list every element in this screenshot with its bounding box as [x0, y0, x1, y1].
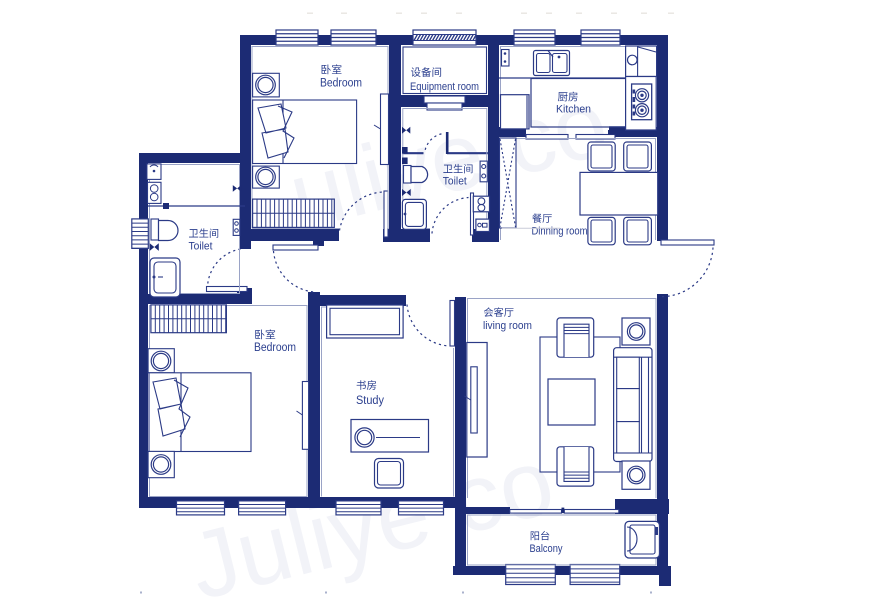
svg-text:Bedroom: Bedroom — [320, 78, 362, 90]
svg-text:living room: living room — [483, 320, 532, 332]
svg-text:Dinning room: Dinning room — [532, 226, 588, 238]
svg-text:Balcony: Balcony — [530, 543, 563, 555]
svg-text:Equipment room: Equipment room — [410, 81, 479, 93]
svg-text:Kitchen: Kitchen — [556, 104, 591, 116]
svg-text:Study: Study — [356, 395, 384, 407]
svg-text:Toilet: Toilet — [443, 176, 467, 188]
svg-text:Toilet: Toilet — [189, 241, 213, 253]
svg-text:Bedroom: Bedroom — [254, 342, 296, 354]
